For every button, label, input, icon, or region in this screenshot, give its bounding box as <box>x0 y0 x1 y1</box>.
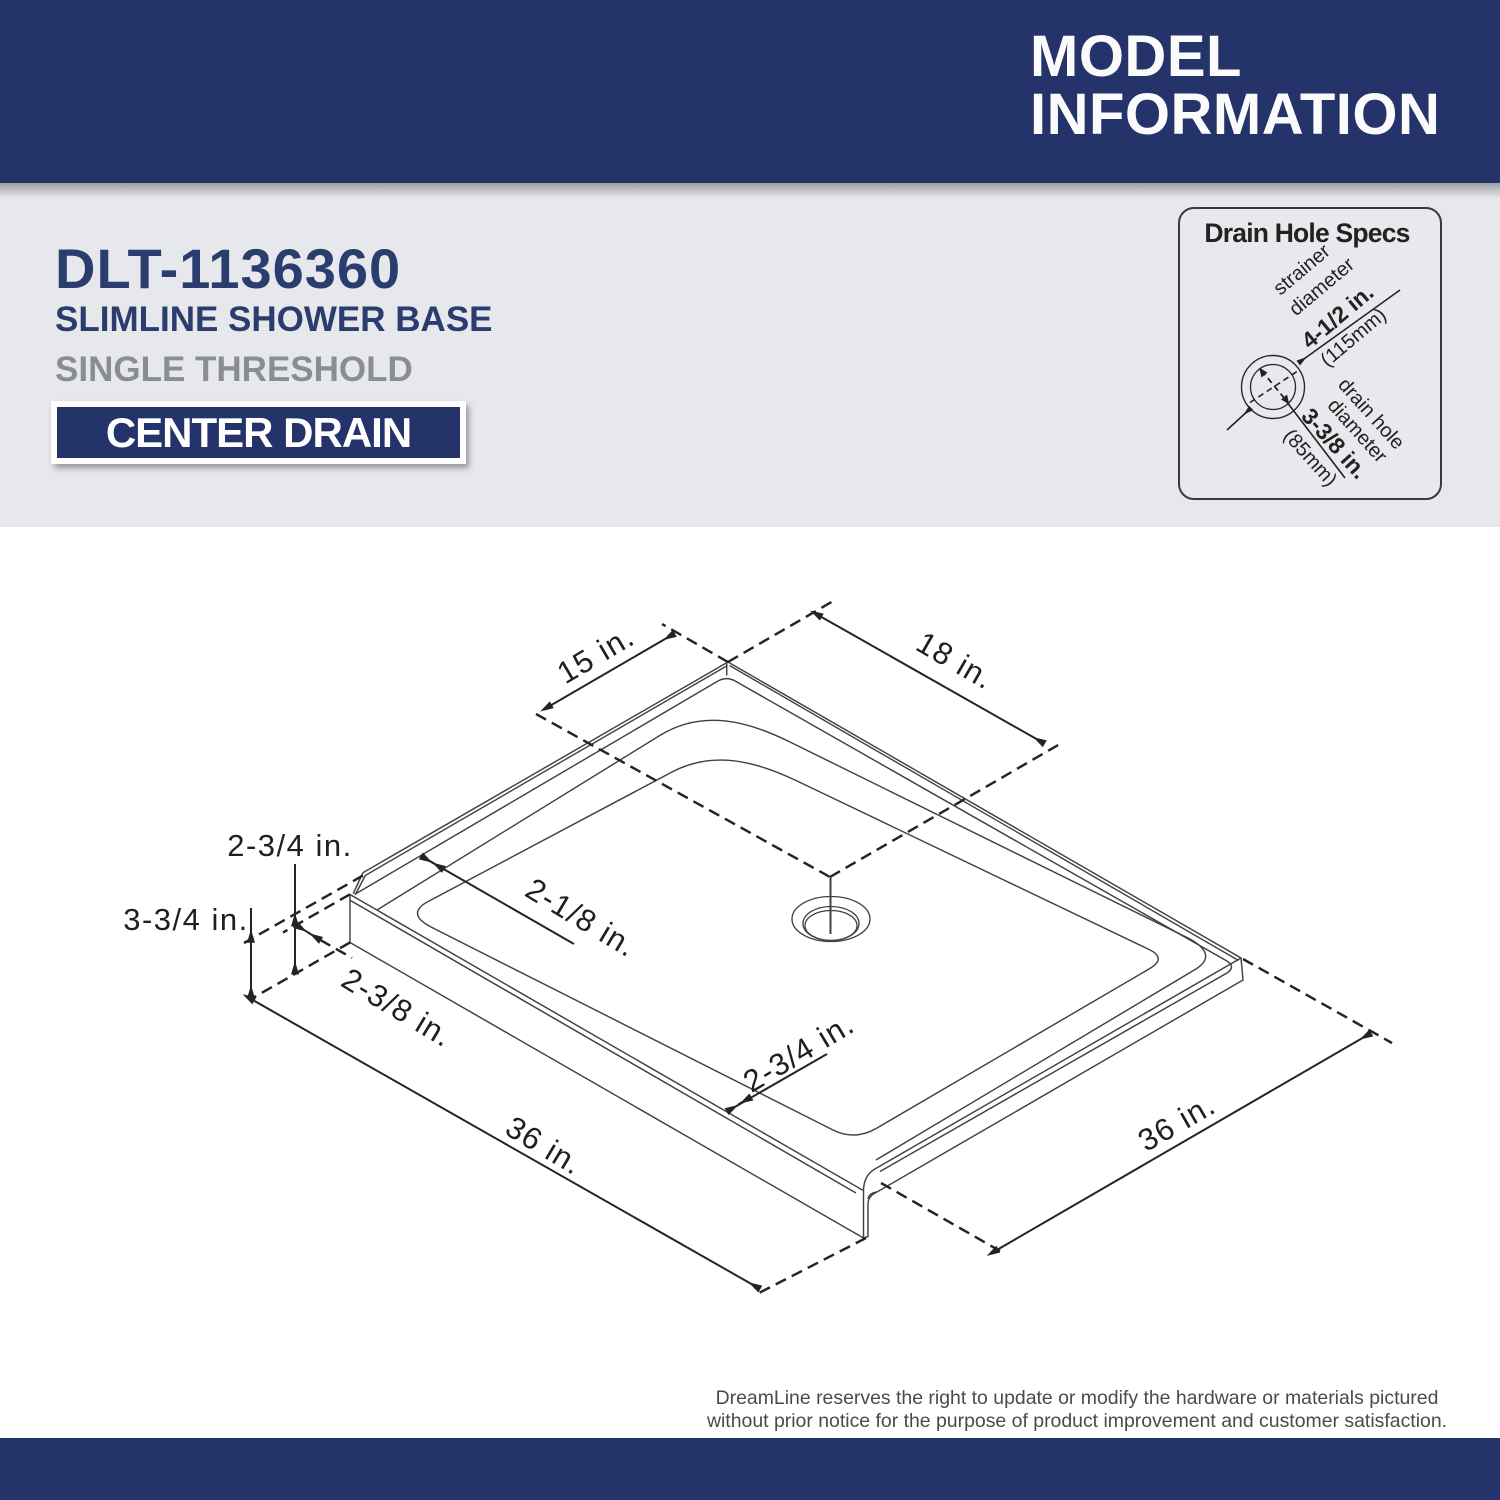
svg-text:2-3/8 in.: 2-3/8 in. <box>336 961 459 1054</box>
svg-text:3-3/4 in.: 3-3/4 in. <box>123 902 249 937</box>
svg-text:2-3/4 in.: 2-3/4 in. <box>227 828 353 863</box>
svg-text:2-3/4 in.: 2-3/4 in. <box>737 1006 860 1099</box>
svg-text:36 in.: 36 in. <box>500 1109 589 1182</box>
svg-text:2-1/8 in.: 2-1/8 in. <box>520 871 643 964</box>
svg-text:36 in.: 36 in. <box>1132 1087 1221 1159</box>
svg-text:18 in.: 18 in. <box>911 625 1000 697</box>
